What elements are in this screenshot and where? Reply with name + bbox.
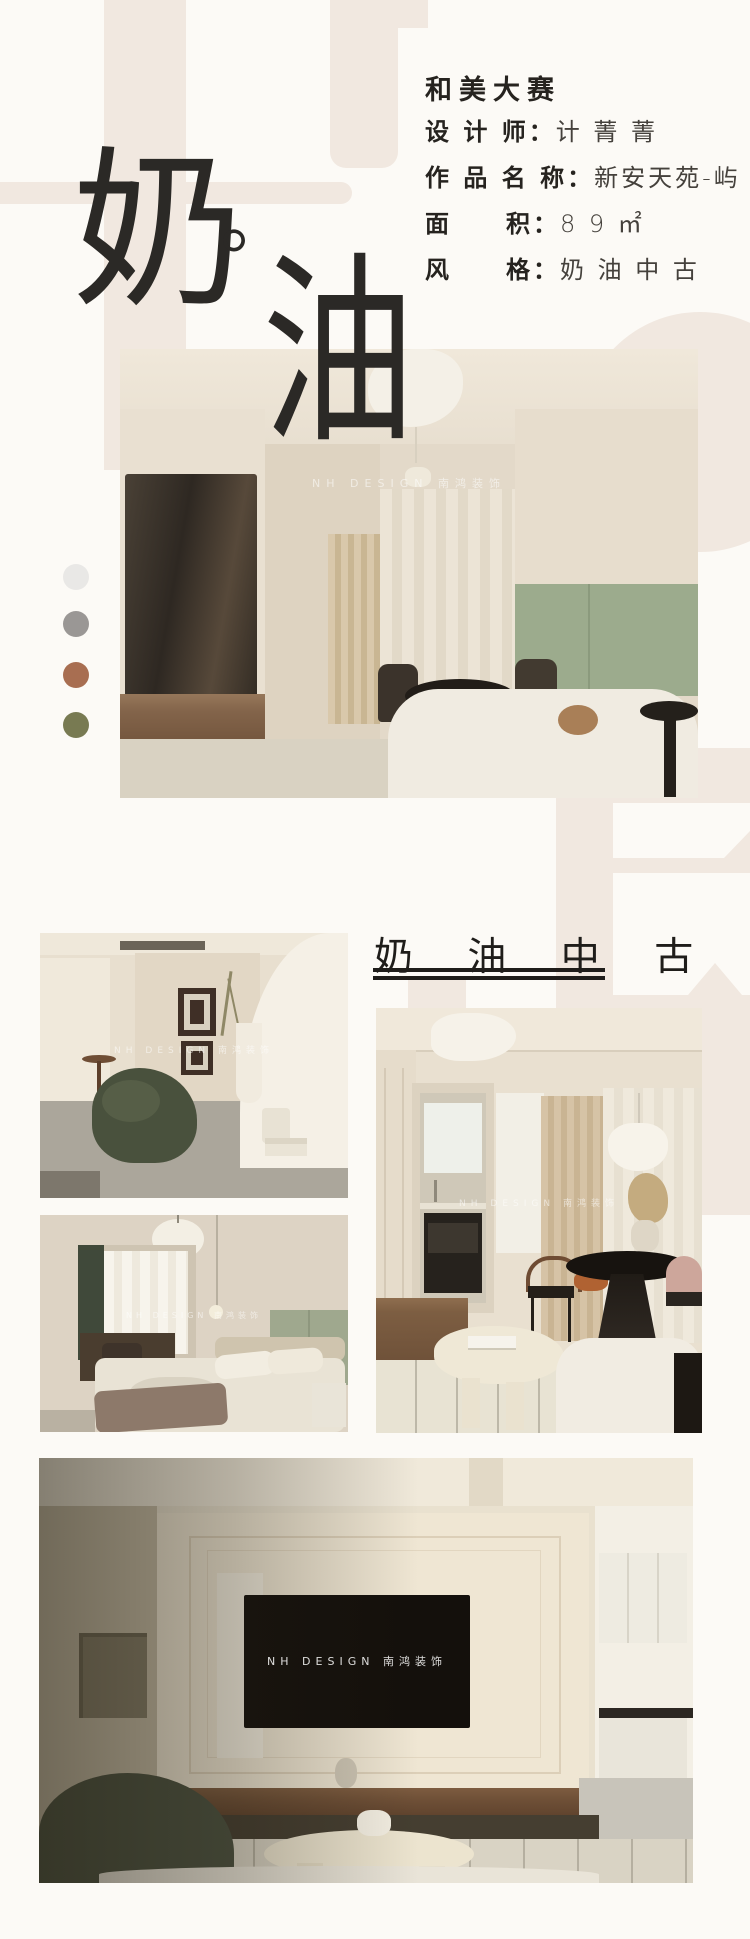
- info-label-project: 作 品 名 称：: [425, 164, 594, 192]
- photo-watermark: NH DESIGN 南鸿装饰: [376, 1196, 702, 1209]
- info-label-style: 风 格：: [425, 256, 560, 284]
- decor-wedge-diagonal: [724, 831, 750, 858]
- info-value-designer: 计 菁 菁: [556, 118, 658, 146]
- window-bright: [496, 1093, 544, 1253]
- photo-watermark: NH DESIGN 南鸿装饰: [40, 1310, 348, 1321]
- photo-hallway-green-chair: NH DESIGN 南鸿装饰: [40, 933, 348, 1198]
- info-row-designer: 设 计 师：计 菁 菁: [425, 112, 658, 147]
- ceiling-vent: [120, 941, 205, 950]
- info-row-style: 风 格：奶 油 中 古: [425, 250, 700, 285]
- pumpkin-pillow: [558, 705, 598, 735]
- decor-patch-above-photo-c: [408, 980, 466, 1008]
- book-stack: [265, 1138, 307, 1156]
- knit-throw: [94, 1382, 229, 1432]
- hero-char-top: 奶: [72, 146, 244, 318]
- coffee-table-cream: [434, 1326, 564, 1384]
- nightstand: [312, 1383, 346, 1427]
- poster-canvas: 奶 。 油 和美大赛 设 计 师：计 菁 菁 作 品 名 称：新安天苑-屿 面 …: [0, 0, 750, 1939]
- palette-dot-gray: [63, 611, 89, 637]
- black-side-table: [664, 717, 676, 797]
- magazine: [468, 1336, 516, 1348]
- palette-dot-light-gray: [63, 564, 89, 590]
- info-row-area: 面 积：8 9 ㎡: [425, 204, 645, 239]
- info-value-project: 新安天苑-屿: [594, 164, 741, 192]
- section-title: 奶 油 中 古: [374, 926, 714, 982]
- info-label-area: 面 积：: [425, 210, 560, 238]
- photo-watermark: NH DESIGN 南鸿装饰: [120, 475, 698, 491]
- section-underline-top: [373, 968, 605, 972]
- decor-vertical-bar-mid-cap: [330, 0, 428, 28]
- hero-char-bottom: 油: [262, 252, 415, 456]
- section-underline-bottom: [373, 976, 605, 980]
- decor-right-slot-upper: [613, 803, 750, 858]
- photo-dining-room: NH DESIGN 南鸿装饰: [376, 1008, 702, 1433]
- right-wall-cream: [515, 409, 698, 584]
- beige-curtain: [541, 1096, 603, 1341]
- ceiling-lamp: [431, 1013, 516, 1061]
- tv-glass-inset: [125, 474, 257, 699]
- info-title: 和美大赛: [425, 68, 561, 107]
- info-row-project: 作 品 名 称：新安天苑-屿: [425, 158, 741, 193]
- tv-screen-watermark: NH DESIGN 南鸿装饰: [244, 1653, 470, 1669]
- wall-frame-upper: [178, 988, 216, 1036]
- palette-dot-terracotta: [63, 662, 89, 688]
- photo-watermark: NH DESIGN 南鸿装饰: [40, 1043, 348, 1056]
- blush-chair: [666, 1256, 702, 1292]
- info-label-designer: 设 计 师：: [425, 118, 556, 146]
- vase: [631, 1220, 659, 1252]
- photo-bedroom: NH DESIGN 南鸿装饰: [40, 1215, 348, 1432]
- dim-overlay: [39, 1458, 693, 1883]
- pendant-lamp: [608, 1123, 668, 1171]
- info-value-style: 奶 油 中 古: [560, 256, 700, 284]
- palette-dot-olive: [63, 712, 89, 738]
- thin-pendant: [216, 1215, 218, 1307]
- wall-vase: [236, 1023, 262, 1103]
- photo-tv-wall-living: NH DESIGN 南鸿装饰: [39, 1458, 693, 1883]
- info-value-area: 8 9 ㎡: [560, 210, 645, 238]
- curtain-column: [328, 534, 380, 724]
- black-side-table: [674, 1353, 702, 1433]
